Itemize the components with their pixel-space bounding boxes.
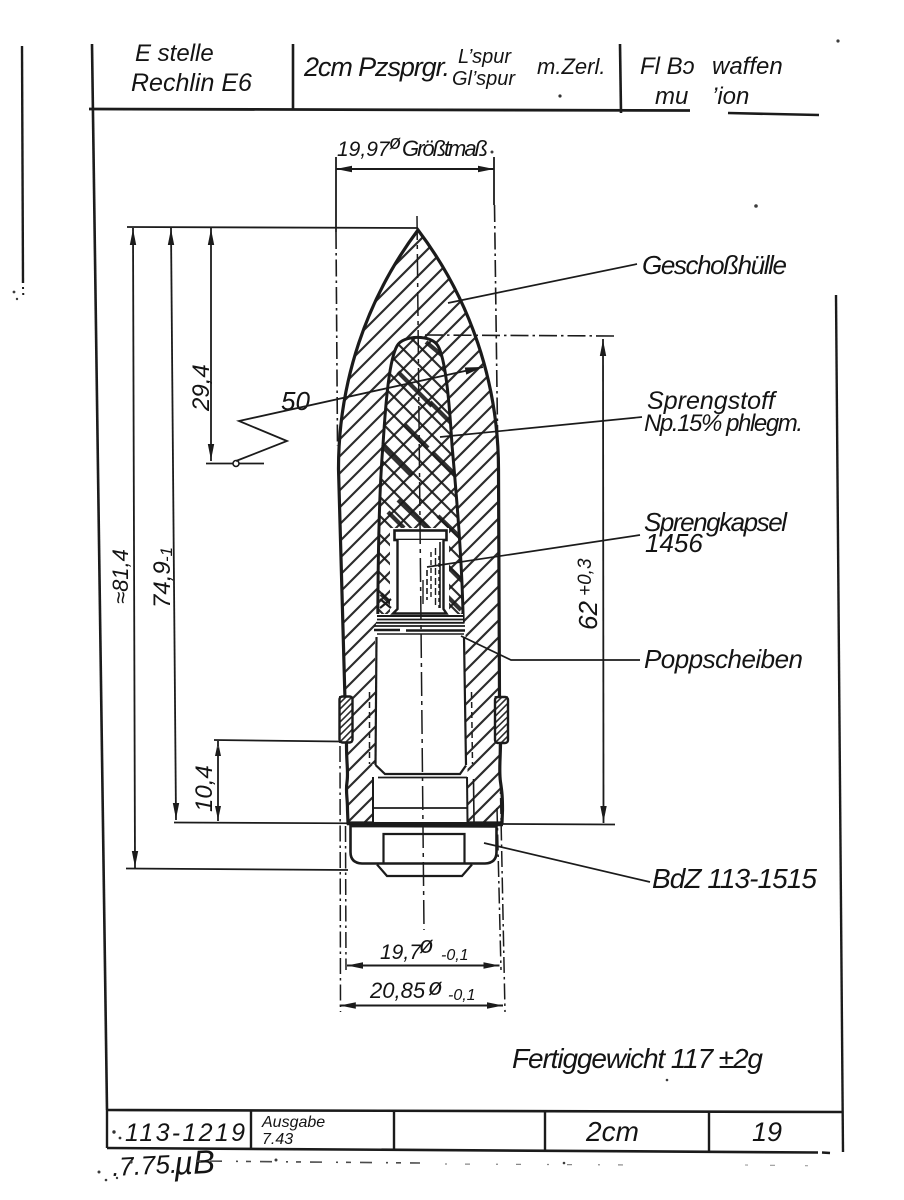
svg-text:E stelle: E stelle xyxy=(135,40,214,67)
svg-text:-0,1: -0,1 xyxy=(441,947,469,964)
svg-text:Np.15% phlegm.: Np.15% phlegm. xyxy=(644,410,803,437)
svg-text:29,4: 29,4 xyxy=(188,364,215,412)
svg-text:.7.75.: .7.75. xyxy=(111,1149,178,1182)
svg-text:’ion: ’ion xyxy=(712,83,749,110)
svg-text:ø: ø xyxy=(419,932,434,959)
svg-text:19: 19 xyxy=(752,1117,782,1147)
svg-text:Größtmaß: Größtmaß xyxy=(402,136,488,161)
svg-text:Fertiggewicht 117 ±2g: Fertiggewicht 117 ±2g xyxy=(512,1043,763,1074)
svg-text:ø: ø xyxy=(428,974,443,1001)
svg-text:2cm: 2cm xyxy=(585,1116,639,1147)
svg-text:19,7: 19,7 xyxy=(380,941,422,964)
svg-text:-0,1: -0,1 xyxy=(448,987,476,1004)
svg-text:62: 62 xyxy=(573,601,603,630)
svg-text:2cm Pzsprgr.: 2cm Pzsprgr. xyxy=(303,52,450,82)
svg-text:L’spur: L’spur xyxy=(458,46,512,68)
svg-text:113-1219: 113-1219 xyxy=(125,1119,245,1147)
svg-text:Geschoßhülle: Geschoßhülle xyxy=(642,250,787,280)
svg-text:ø: ø xyxy=(389,132,401,154)
svg-text:20,85: 20,85 xyxy=(369,978,426,1003)
svg-text:+0,3: +0,3 xyxy=(575,558,596,596)
svg-text:19,97: 19,97 xyxy=(337,138,391,161)
svg-text:Poppscheiben: Poppscheiben xyxy=(644,644,803,674)
svg-text:-1: -1 xyxy=(157,547,176,562)
svg-text:m.Zerl.: m.Zerl. xyxy=(537,54,605,79)
svg-text:74,9: 74,9 xyxy=(149,561,176,608)
svg-text:mu: mu xyxy=(655,83,688,110)
svg-text:Fl Bɔ: Fl Bɔ xyxy=(640,53,695,80)
svg-text:µB: µB xyxy=(172,1143,216,1182)
svg-text:BdZ 113-1515: BdZ 113-1515 xyxy=(652,863,817,894)
svg-text:waffen: waffen xyxy=(712,53,783,80)
svg-text:10,4: 10,4 xyxy=(191,765,218,812)
svg-text:Ausgabe: Ausgabe xyxy=(261,1114,325,1131)
svg-text:1456: 1456 xyxy=(645,528,703,558)
svg-text:≈81,4: ≈81,4 xyxy=(108,549,133,604)
svg-text:7.43: 7.43 xyxy=(262,1131,293,1148)
svg-text:Rechlin E6: Rechlin E6 xyxy=(131,69,252,97)
svg-text:Gl’spur: Gl’spur xyxy=(452,68,516,90)
